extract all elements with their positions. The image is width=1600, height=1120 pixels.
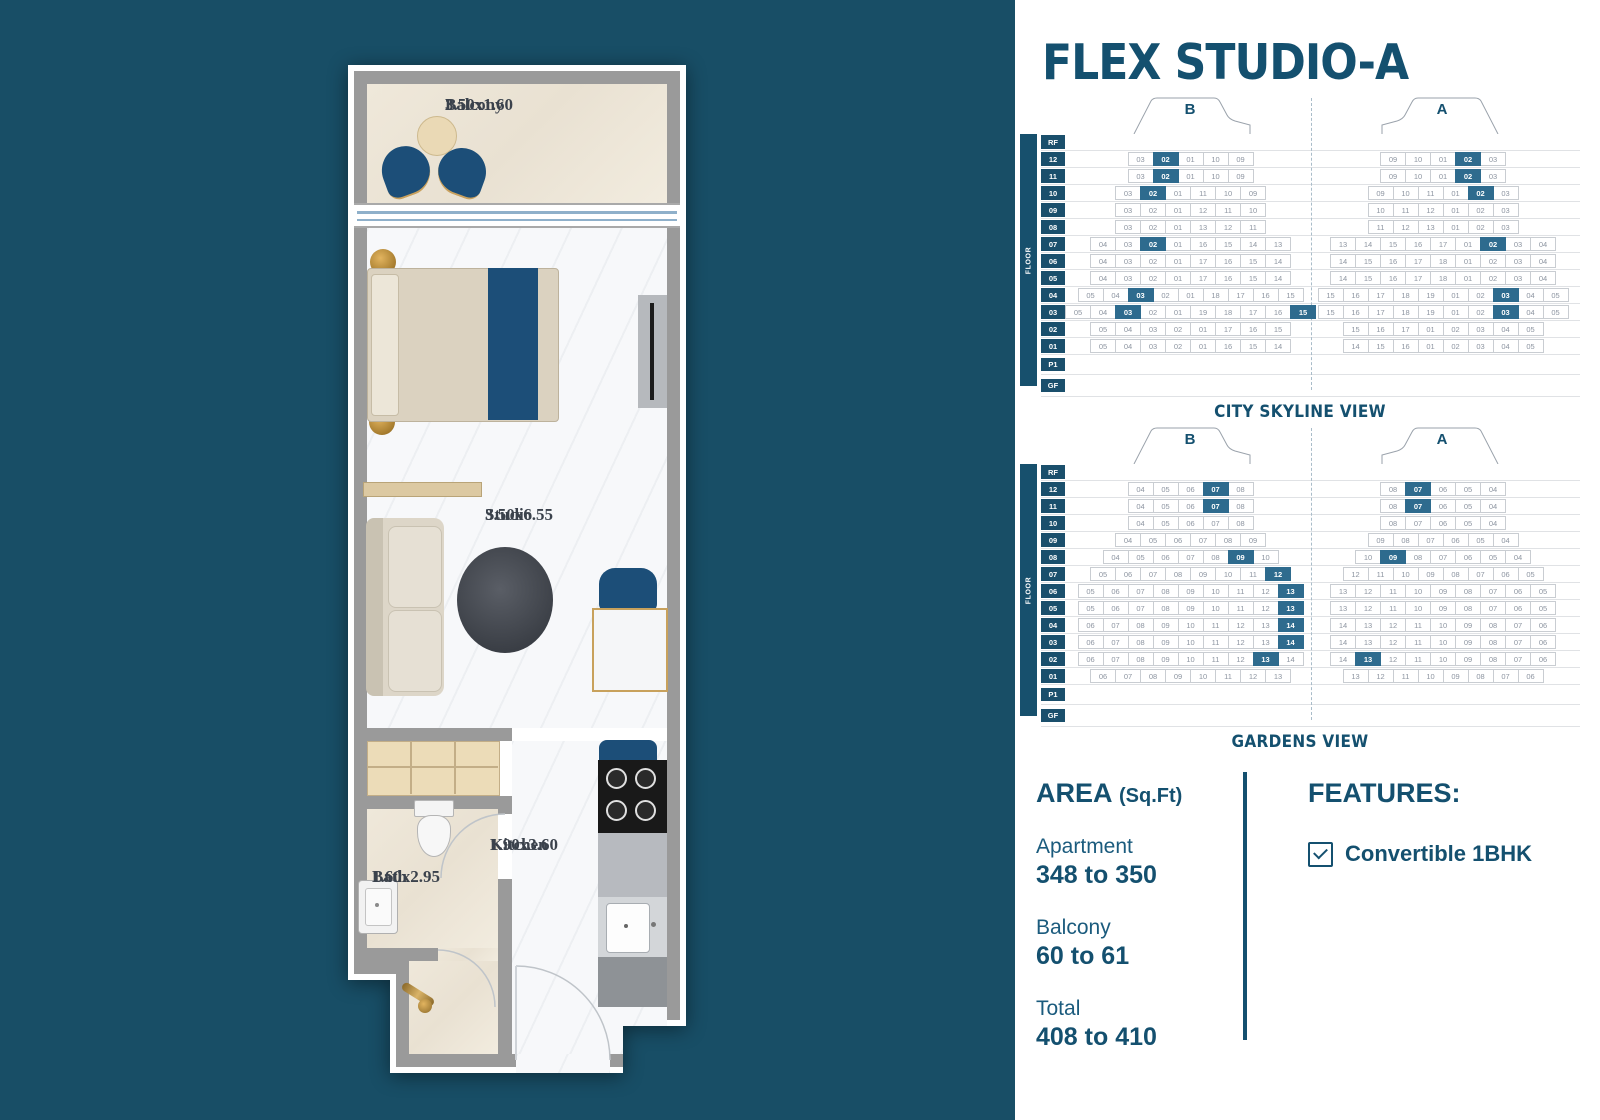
wing-a-units: 1415160102030405	[1311, 339, 1574, 354]
wing-b-units: 0302011009	[1069, 169, 1311, 184]
unit-cell: 14	[1343, 339, 1369, 354]
unit-cell-highlighted: 02	[1140, 237, 1166, 252]
unit-cell: 17	[1405, 271, 1431, 286]
unit-cell: 16	[1405, 237, 1431, 252]
unit-cell: 01	[1190, 339, 1216, 354]
unit-cell: 16	[1265, 305, 1291, 320]
unit-cell: 02	[1468, 220, 1494, 235]
unit-cell: 06	[1530, 618, 1556, 633]
section-divider	[1243, 772, 1247, 1040]
unit-cell: 11	[1368, 567, 1394, 582]
unit-cell: 03	[1480, 169, 1506, 184]
unit-cell: 03	[1505, 271, 1531, 286]
unit-cell: 02	[1480, 271, 1506, 286]
wing-b-roof: B	[1124, 94, 1256, 134]
unit-cell: 03	[1115, 237, 1141, 252]
unit-cell: 09	[1443, 669, 1469, 684]
unit-cell: 14	[1265, 339, 1291, 354]
unit-cell: 13	[1330, 584, 1356, 599]
floor-label: 11	[1041, 169, 1065, 183]
unit-cell: 10	[1405, 169, 1431, 184]
unit-cell: 09	[1368, 533, 1394, 548]
unit-cell: 16	[1368, 322, 1394, 337]
wing-b-label: B	[1124, 431, 1256, 448]
unit-cell: 05	[1530, 584, 1556, 599]
feature-label: Convertible 1BHK	[1345, 841, 1532, 867]
unit-cell: 11	[1215, 203, 1241, 218]
floor-label: 04	[1041, 618, 1065, 632]
unit-cell: 13	[1190, 220, 1216, 235]
unit-cell: 04	[1493, 339, 1519, 354]
wing-b-units: 0405060708	[1069, 482, 1311, 497]
wing-b-units: 04050607080910	[1069, 550, 1311, 565]
wing-b-units: 060708091011121314	[1069, 635, 1311, 650]
unit-cell: 10	[1430, 635, 1456, 650]
unit-cell: 03	[1115, 254, 1141, 269]
unit-cell: 14	[1330, 254, 1356, 269]
unit-cell: 06	[1178, 482, 1204, 497]
wing-divider-dashed	[1311, 428, 1312, 720]
unit-cell: 11	[1190, 186, 1216, 201]
unit-cell: 01	[1165, 220, 1191, 235]
unit-cell: 11	[1203, 618, 1229, 633]
unit-cell: 05	[1153, 516, 1179, 531]
unit-cell: 07	[1505, 652, 1531, 667]
unit-cell: 19	[1190, 305, 1216, 320]
unit-cell: 16	[1215, 271, 1241, 286]
unit-cell: 02	[1468, 203, 1494, 218]
unit-cell: 01	[1455, 271, 1481, 286]
unit-cell: 04	[1518, 288, 1544, 303]
unit-cell: 05	[1090, 322, 1116, 337]
wing-b-units: 0403020117161514	[1069, 254, 1311, 269]
unit-cell: 13	[1330, 237, 1356, 252]
unit-cell-highlighted: 02	[1153, 169, 1179, 184]
wing-a-units: 10090807060504	[1311, 550, 1574, 565]
unit-cell: 03	[1140, 322, 1166, 337]
view-caption: CITY SKYLINE VIEW	[1020, 402, 1580, 422]
floor-label: 01	[1041, 339, 1065, 353]
unit-cell: 11	[1203, 652, 1229, 667]
wing-a-units: 131415161701020304	[1311, 237, 1574, 252]
unit-cell: 17	[1393, 322, 1419, 337]
unit-cell: 05	[1090, 339, 1116, 354]
unit-cell: 08	[1203, 550, 1229, 565]
unit-cell-highlighted: 02	[1140, 186, 1166, 201]
unit-cell: 12	[1228, 618, 1254, 633]
unit-cell-highlighted: 03	[1128, 288, 1154, 303]
unit-cell: 02	[1443, 339, 1469, 354]
wing-b-units: 050607080910111213	[1069, 601, 1311, 616]
unit-cell: 12	[1190, 203, 1216, 218]
unit-cell: 08	[1153, 601, 1179, 616]
unit-cell: 18	[1393, 305, 1419, 320]
unit-cell: 05	[1543, 305, 1569, 320]
wing-a-units: 15161718190102030405	[1311, 288, 1574, 303]
wing-b-units: 0302011009	[1069, 152, 1311, 167]
unit-cell-highlighted: 13	[1355, 652, 1381, 667]
unit-cell: 11	[1418, 186, 1444, 201]
wing-b-units: 060708091011121314	[1069, 618, 1311, 633]
wing-b-units: 0403020117161514	[1069, 271, 1311, 286]
floorplan: Balcony3.50x1.60 Studio3.50x6.55 Kitchen…	[338, 60, 688, 1074]
unit-cell: 04	[1480, 516, 1506, 531]
unit-cell: 06	[1078, 652, 1104, 667]
unit-cell: 05	[1153, 482, 1179, 497]
unit-cell: 09	[1165, 669, 1191, 684]
unit-cell: 01	[1443, 288, 1469, 303]
floor-label: 02	[1041, 652, 1065, 666]
wing-a-units: 1211100908070605	[1311, 567, 1574, 582]
unit-cell: 10	[1405, 584, 1431, 599]
unit-cell: 05	[1078, 288, 1104, 303]
unit-cell: 08	[1128, 618, 1154, 633]
unit-cell: 07	[1115, 669, 1141, 684]
unit-cell: 03	[1480, 152, 1506, 167]
unit-cell: 04	[1530, 271, 1556, 286]
unit-cell: 08	[1380, 499, 1406, 514]
unit-cell: 01	[1165, 254, 1191, 269]
unit-cell: 07	[1430, 550, 1456, 565]
unit-cell: 19	[1418, 288, 1444, 303]
wing-b-units: 060708091011121314	[1069, 652, 1311, 667]
unit-cell: 10	[1430, 618, 1456, 633]
view-caption: GARDENS VIEW	[1020, 732, 1580, 752]
unit-cell: 10	[1190, 669, 1216, 684]
floor-label: 07	[1041, 237, 1065, 251]
area-item-value: 60 to 61	[1036, 942, 1182, 971]
unit-cell-highlighted: 13	[1253, 652, 1279, 667]
unit-cell: 08	[1480, 635, 1506, 650]
unit-cell: 08	[1455, 601, 1481, 616]
unit-cell: 05	[1518, 567, 1544, 582]
unit-cell-highlighted: 07	[1203, 499, 1229, 514]
area-item-apartment: Apartment 348 to 350	[1036, 835, 1182, 890]
unit-cell: 06	[1165, 533, 1191, 548]
wing-a-units: 141516171801020304	[1311, 271, 1574, 286]
unit-cell: 11	[1405, 652, 1431, 667]
unit-cell: 12	[1393, 220, 1419, 235]
unit-cell: 11	[1228, 584, 1254, 599]
floor-label: 06	[1041, 584, 1065, 598]
unit-cell: 17	[1190, 254, 1216, 269]
unit-cell: 03	[1115, 271, 1141, 286]
unit-cell: 04	[1090, 254, 1116, 269]
unit-cell: 18	[1215, 305, 1241, 320]
unit-cell: 12	[1240, 669, 1266, 684]
unit-cell: 05	[1468, 533, 1494, 548]
floor-label: 08	[1041, 220, 1065, 234]
floor-label: 03	[1041, 305, 1065, 319]
area-item-label: Balcony	[1036, 916, 1182, 940]
unit-cell: 06	[1493, 567, 1519, 582]
wing-b-roof: B	[1124, 424, 1256, 464]
unit-cell: 16	[1343, 288, 1369, 303]
unit-cell: 06	[1455, 550, 1481, 565]
unit-cell: 03	[1115, 203, 1141, 218]
unit-cell: 03	[1128, 152, 1154, 167]
unit-cell: 16	[1393, 339, 1419, 354]
unit-cell-highlighted: 03	[1115, 305, 1141, 320]
unit-cell: 14	[1240, 237, 1266, 252]
unit-cell: 06	[1153, 550, 1179, 565]
wing-b-units: 050403020118171615	[1069, 288, 1311, 303]
unit-cell: 16	[1380, 254, 1406, 269]
wing-a-units: 091011010203	[1311, 186, 1574, 201]
unit-cell: 11	[1380, 584, 1406, 599]
unit-cell: 08	[1165, 567, 1191, 582]
unit-cell: 01	[1455, 237, 1481, 252]
unit-cell: 14	[1330, 635, 1356, 650]
unit-cell: 05	[1078, 601, 1104, 616]
unit-cell: 07	[1505, 618, 1531, 633]
unit-cell: 14	[1355, 237, 1381, 252]
unit-cell: 07	[1128, 584, 1154, 599]
unit-cell: 05	[1065, 305, 1091, 320]
unit-cell: 11	[1228, 601, 1254, 616]
unit-cell: 05	[1455, 499, 1481, 514]
unit-cell: 03	[1115, 186, 1141, 201]
unit-cell: 15	[1368, 339, 1394, 354]
unit-cell: 07	[1480, 601, 1506, 616]
unit-cell: 09	[1190, 567, 1216, 582]
wing-b-label: B	[1124, 101, 1256, 118]
unit-cell: 06	[1518, 669, 1544, 684]
floor-label: 09	[1041, 203, 1065, 217]
unit-cell: 13	[1355, 635, 1381, 650]
unit-cell: 12	[1418, 203, 1444, 218]
unit-cell: 10	[1430, 652, 1456, 667]
unit-cell: 14	[1330, 652, 1356, 667]
unit-cell: 09	[1418, 567, 1444, 582]
unit-cell: 07	[1178, 550, 1204, 565]
wing-b-units: 030201131211	[1069, 220, 1311, 235]
building-diagram-gardens: FLOOR B A RF1204050607080807060504110405…	[1020, 464, 1580, 752]
wing-a-units: 0910010203	[1311, 169, 1574, 184]
unit-cell: 10	[1405, 601, 1431, 616]
unit-cell: 02	[1140, 220, 1166, 235]
floor-row: 0305040302011918171615151617181901020304…	[1041, 304, 1580, 321]
unit-cell: 13	[1253, 618, 1279, 633]
unit-cell: 08	[1480, 652, 1506, 667]
unit-cell: 06	[1078, 635, 1104, 650]
unit-cell: 03	[1115, 220, 1141, 235]
unit-cell: 15	[1318, 305, 1344, 320]
floor-label: 05	[1041, 271, 1065, 285]
unit-cell: 05	[1090, 567, 1116, 582]
unit-cell: 01	[1165, 203, 1191, 218]
unit-cell: 04	[1493, 533, 1519, 548]
unit-cell: 11	[1368, 220, 1394, 235]
unit-cell: 09	[1455, 652, 1481, 667]
unit-cell: 09	[1380, 169, 1406, 184]
unit-cell: 08	[1128, 635, 1154, 650]
unit-cell: 16	[1240, 322, 1266, 337]
floor-label: 10	[1041, 186, 1065, 200]
area-item-label: Apartment	[1036, 835, 1182, 859]
unit-cell: 01	[1455, 254, 1481, 269]
unit-cell: 01	[1443, 220, 1469, 235]
unit-cell: 02	[1140, 203, 1166, 218]
unit-cell: 10	[1203, 584, 1229, 599]
unit-cell: 02	[1140, 254, 1166, 269]
unit-cell: 17	[1228, 288, 1254, 303]
unit-cell: 01	[1418, 339, 1444, 354]
wing-b-units: 050607080910111213	[1069, 584, 1311, 599]
area-section: AREA (Sq.Ft) Apartment 348 to 350 Balcon…	[1036, 778, 1182, 1052]
unit-cell: 15	[1355, 271, 1381, 286]
building-diagram-city-skyline: FLOOR B A RF1203020110090910010203110302…	[1020, 134, 1580, 422]
unit-cell: 10	[1405, 152, 1431, 167]
unit-cell: 07	[1103, 635, 1129, 650]
unit-cell: 04	[1518, 305, 1544, 320]
features-heading: FEATURES:	[1308, 778, 1532, 809]
unit-cell: 09	[1380, 152, 1406, 167]
unit-cell: 05	[1530, 601, 1556, 616]
unit-cell: 03	[1493, 186, 1519, 201]
floor-axis-bar: FLOOR	[1020, 464, 1037, 716]
floor-label: P1	[1041, 688, 1065, 702]
wing-b-units: 030201121110	[1069, 203, 1311, 218]
unit-cell-highlighted: 02	[1153, 152, 1179, 167]
unit-cell: 10	[1253, 550, 1279, 565]
unit-cell: 01	[1165, 305, 1191, 320]
wing-a-units: 090807060504	[1311, 533, 1574, 548]
unit-cell: 05	[1518, 339, 1544, 354]
unit-cell: 08	[1405, 550, 1431, 565]
unit-cell: 03	[1468, 339, 1494, 354]
unit-cell: 15	[1278, 288, 1304, 303]
unit-cell: 05	[1078, 584, 1104, 599]
unit-cell: 13	[1265, 669, 1291, 684]
unit-cell: 02	[1443, 322, 1469, 337]
wing-b-units: 0506070809101112	[1069, 567, 1311, 582]
unit-cell: 04	[1480, 499, 1506, 514]
unit-cell: 12	[1228, 652, 1254, 667]
unit-cell: 01	[1430, 152, 1456, 167]
unit-cell: 14	[1278, 652, 1304, 667]
unit-cell: 04	[1530, 237, 1556, 252]
unit-cell: 14	[1265, 271, 1291, 286]
unit-cell: 10	[1368, 203, 1394, 218]
unit-cell: 17	[1368, 305, 1394, 320]
unit-cell: 10	[1393, 567, 1419, 582]
area-item-value: 408 to 410	[1036, 1023, 1182, 1052]
unit-cell: 06	[1430, 516, 1456, 531]
unit-cell: 04	[1090, 305, 1116, 320]
unit-cell: 03	[1505, 254, 1531, 269]
wing-b-units: 040506070809	[1069, 533, 1311, 548]
unit-cell: 13	[1343, 669, 1369, 684]
unit-cell: 13	[1253, 635, 1279, 650]
unit-cell-highlighted: 03	[1493, 305, 1519, 320]
unit-cell: 18	[1203, 288, 1229, 303]
unit-cell: 12	[1253, 601, 1279, 616]
unit-cell: 16	[1190, 237, 1216, 252]
unit-cell: 15	[1265, 322, 1291, 337]
unit-cell: 11	[1393, 669, 1419, 684]
unit-cell: 08	[1468, 669, 1494, 684]
unit-cell: 08	[1140, 669, 1166, 684]
unit-cell: 11	[1380, 601, 1406, 616]
floor-label: P1	[1041, 358, 1065, 372]
floor-label: 03	[1041, 635, 1065, 649]
unit-cell: 07	[1505, 635, 1531, 650]
unit-cell: 02	[1480, 254, 1506, 269]
unit-cell: 08	[1380, 482, 1406, 497]
unit-cell: 01	[1443, 203, 1469, 218]
unit-cell: 04	[1128, 499, 1154, 514]
unit-cell: 04	[1128, 482, 1154, 497]
wing-a-units: 0807060504	[1311, 516, 1574, 531]
area-heading-unit: (Sq.Ft)	[1119, 785, 1182, 807]
unit-cell: 04	[1480, 482, 1506, 497]
feature-item: Convertible 1BHK	[1308, 841, 1532, 867]
unit-cell: 16	[1253, 288, 1279, 303]
floor-label: 09	[1041, 533, 1065, 547]
unit-cell: 12	[1253, 584, 1279, 599]
unit-cell: 12	[1215, 220, 1241, 235]
unit-cell-highlighted: 02	[1480, 237, 1506, 252]
wing-b-units: 0403020116151413	[1069, 237, 1311, 252]
wing-a-units: 0807060504	[1311, 499, 1574, 514]
unit-cell: 03	[1468, 322, 1494, 337]
unit-cell: 08	[1228, 499, 1254, 514]
floor-label: 07	[1041, 567, 1065, 581]
unit-cell: 08	[1228, 482, 1254, 497]
unit-cell: 12	[1380, 618, 1406, 633]
unit-cell: 10	[1178, 635, 1204, 650]
unit-cell: 15	[1240, 339, 1266, 354]
unit-cell: 10	[1215, 567, 1241, 582]
unit-cell: 09	[1153, 652, 1179, 667]
unit-cell: 09	[1240, 533, 1266, 548]
unit-cell: 04	[1530, 254, 1556, 269]
unit-cell: 09	[1430, 601, 1456, 616]
unit-cell: 07	[1468, 567, 1494, 582]
unit-cell-highlighted: 02	[1455, 152, 1481, 167]
unit-cell: 07	[1493, 669, 1519, 684]
unit-cell: 16	[1215, 254, 1241, 269]
unit-cell: 07	[1103, 652, 1129, 667]
wing-a-units: 141516171801020304	[1311, 254, 1574, 269]
unit-cell: 02	[1468, 288, 1494, 303]
unit-cell: 01	[1190, 322, 1216, 337]
unit-cell: 17	[1240, 305, 1266, 320]
page-title: FLEX STUDIO-A	[1042, 34, 1408, 91]
unit-cell: 01	[1443, 186, 1469, 201]
unit-cell: 05	[1455, 482, 1481, 497]
door-swing-arcs	[338, 60, 688, 1074]
unit-cell: 08	[1480, 618, 1506, 633]
wing-a-units: 0807060504	[1311, 482, 1574, 497]
unit-cell: 08	[1228, 516, 1254, 531]
unit-cell: 15	[1318, 288, 1344, 303]
floor-label: 05	[1041, 601, 1065, 615]
unit-cell: 13	[1418, 220, 1444, 235]
unit-cell: 10	[1203, 601, 1229, 616]
unit-cell: 05	[1480, 550, 1506, 565]
unit-cell: 06	[1505, 601, 1531, 616]
floor-label: 11	[1041, 499, 1065, 513]
unit-cell: 01	[1430, 169, 1456, 184]
unit-cell: 14	[1330, 618, 1356, 633]
wing-b-units: 0405060708	[1069, 499, 1311, 514]
unit-cell: 09	[1240, 186, 1266, 201]
unit-cell: 12	[1368, 669, 1394, 684]
unit-cell: 09	[1455, 618, 1481, 633]
unit-cell: 08	[1380, 516, 1406, 531]
